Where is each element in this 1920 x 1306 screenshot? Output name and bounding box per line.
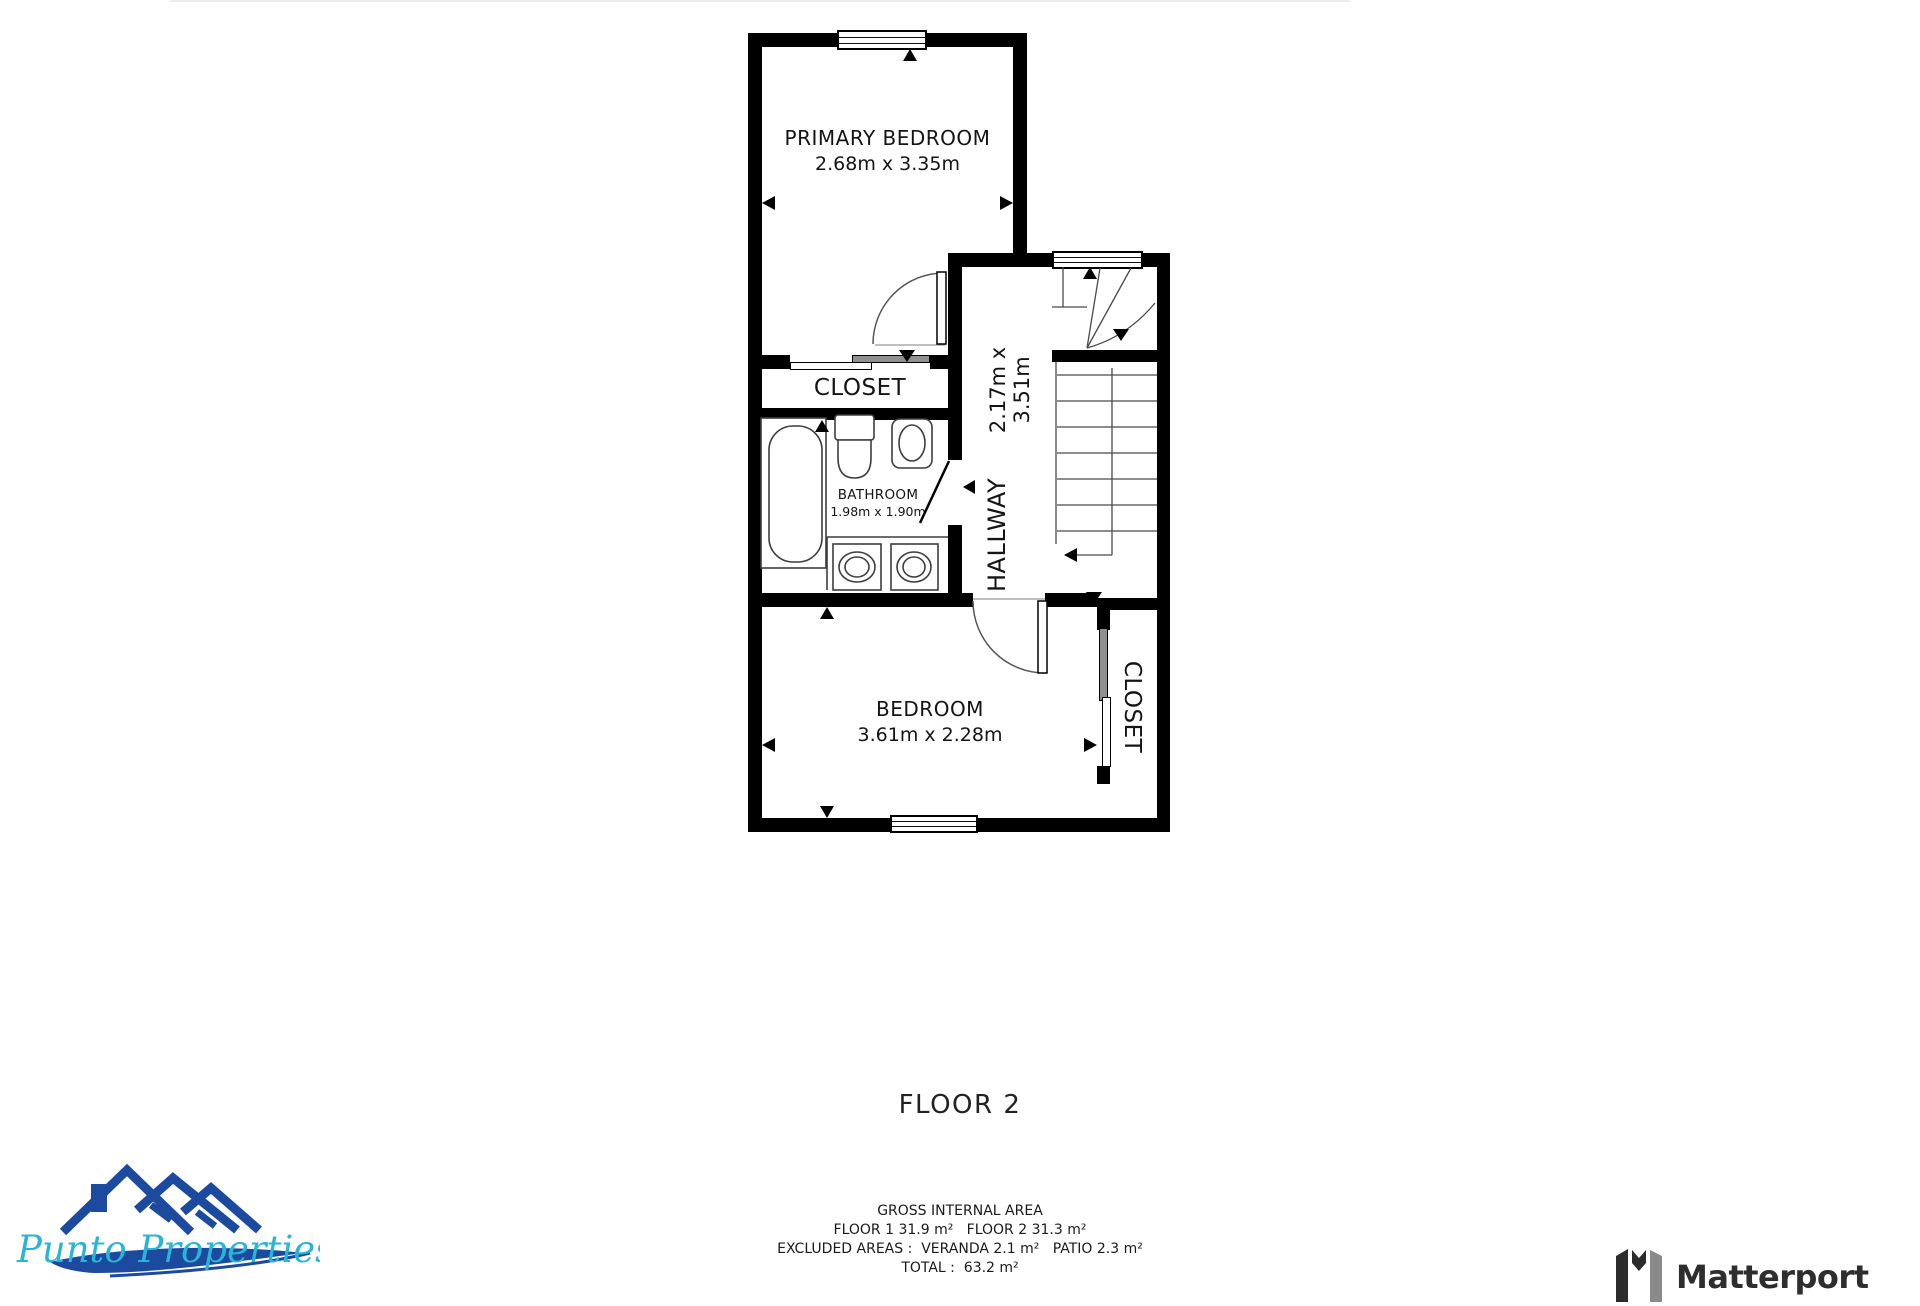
- room-label-primary-bedroom: PRIMARY BEDROOM 2.68m x 3.35m: [762, 126, 1013, 175]
- punto-properties-logo: Punto Properties: [15, 1150, 320, 1280]
- agency-name: Punto Properties: [16, 1228, 320, 1271]
- room-dims: 3.61m x 2.28m: [762, 724, 1098, 746]
- vanity-double-sink: [827, 537, 948, 590]
- room-label-bathroom: BATHROOM 1.98m x 1.90m: [785, 487, 971, 519]
- room-label-bedroom: BEDROOM 3.61m x 2.28m: [762, 697, 1098, 746]
- floor-title: FLOOR 2: [0, 1090, 1920, 1120]
- room-label-closet: CLOSET: [762, 375, 958, 401]
- provider-name: Matterport: [1676, 1258, 1868, 1296]
- room-label-closet-right: CLOSET: [1119, 632, 1145, 782]
- matterport-logo: Matterport: [1614, 1242, 1920, 1302]
- room-label-hallway: HALLWAY 2.17m x 3.51m: [979, 312, 1037, 592]
- toilet: [835, 415, 874, 478]
- toilet-2: [892, 419, 932, 468]
- punto-logo-graphic: Punto Properties: [15, 1150, 320, 1280]
- roofline-icon: [63, 1170, 259, 1232]
- stairs: [1052, 267, 1157, 555]
- door-bedroom: [973, 599, 1047, 673]
- room-dims: 1.98m x 1.90m: [785, 504, 971, 519]
- room-name: CLOSET: [1119, 661, 1145, 753]
- room-name: CLOSET: [814, 375, 906, 401]
- stairs-direction-arrow: [1064, 548, 1077, 562]
- room-name: PRIMARY BEDROOM: [762, 126, 1013, 150]
- plan-linework: [0, 0, 1920, 1280]
- room-name: HALLWAY: [983, 478, 1011, 592]
- room-name: BEDROOM: [762, 697, 1098, 721]
- room-name: BATHROOM: [785, 487, 971, 503]
- room-dims: 2.68m x 3.35m: [762, 153, 1013, 175]
- room-dims: 2.17m x 3.51m: [986, 312, 1034, 468]
- door-primary-bedroom: [873, 272, 946, 345]
- matterport-m-icon: [1614, 1246, 1664, 1306]
